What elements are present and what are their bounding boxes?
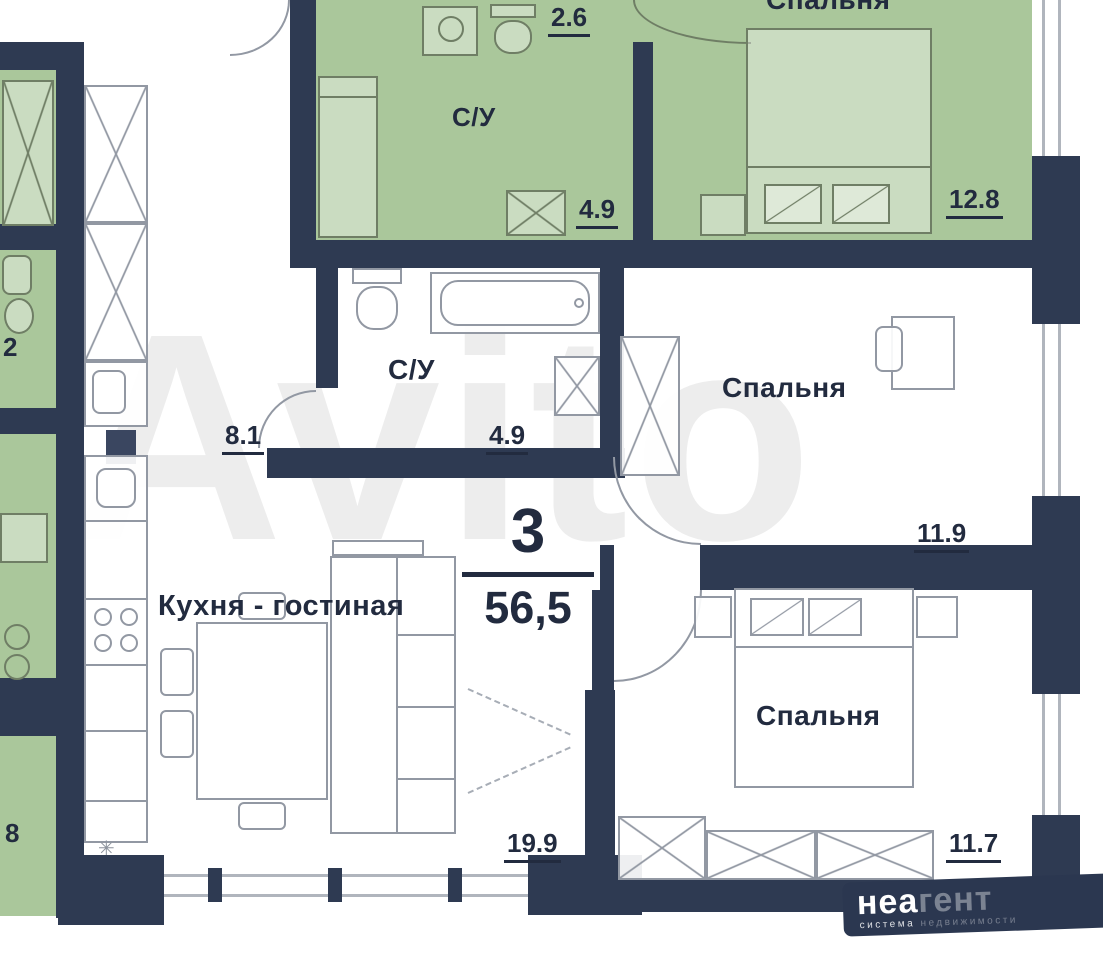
logo-brand-light: гент xyxy=(918,880,994,921)
hallway-cabinet xyxy=(92,370,126,414)
counter-divider xyxy=(86,800,146,802)
bathtub-drain xyxy=(574,298,584,308)
sofa-cushion xyxy=(398,706,454,708)
kitchen-sink xyxy=(96,468,136,508)
bedroom-middle-label: Спальня xyxy=(722,372,846,404)
counter-divider xyxy=(86,598,146,600)
pillow xyxy=(764,184,822,224)
window xyxy=(1058,0,1061,156)
sofa-armrest xyxy=(332,540,424,556)
wardrobe xyxy=(618,816,706,880)
wall xyxy=(1032,156,1080,324)
shower-line xyxy=(318,96,378,98)
sink xyxy=(4,298,34,334)
bathroom-area: 4.9 xyxy=(486,420,528,455)
kitchen-counter xyxy=(84,455,148,843)
toilet xyxy=(356,286,398,330)
kitchen-living-label: Кухня - гостиная xyxy=(158,590,404,623)
counter-divider xyxy=(86,664,146,666)
bed-line xyxy=(748,166,930,168)
neighbor-bedroom-label: Спальня xyxy=(766,0,890,16)
nightstand xyxy=(916,596,958,638)
wall xyxy=(0,224,56,250)
hallway-area: 8.1 xyxy=(222,420,264,455)
sofa-cushion xyxy=(398,634,454,636)
total-area: 56,5 xyxy=(462,582,594,634)
counter-divider xyxy=(86,520,146,522)
sink xyxy=(4,654,30,680)
window xyxy=(1058,324,1061,496)
opening-mark xyxy=(468,747,571,794)
sink xyxy=(554,356,600,416)
wardrobe xyxy=(706,830,816,880)
nightstand xyxy=(694,596,732,638)
wall xyxy=(58,855,164,925)
toilet xyxy=(2,255,32,295)
wardrobe xyxy=(84,85,148,223)
neighbor-bathroom-label: С/У xyxy=(452,102,496,133)
stove-burner xyxy=(120,608,138,626)
door-arc xyxy=(614,590,702,682)
wall xyxy=(316,268,338,388)
stove-burner xyxy=(120,634,138,652)
wall xyxy=(290,240,1032,268)
bed-line xyxy=(736,646,912,648)
counter-divider xyxy=(86,730,146,732)
wall xyxy=(592,590,614,690)
wall xyxy=(633,42,653,240)
window-mullion xyxy=(208,868,222,902)
neagent-logo: неагент система недвижимости xyxy=(842,867,1103,940)
wall xyxy=(56,42,84,918)
rooms-count: 3 xyxy=(462,496,594,567)
window-mullion xyxy=(448,868,462,902)
logo-brand-strong: неа xyxy=(856,882,919,922)
chair xyxy=(875,326,903,372)
window xyxy=(1058,694,1061,815)
window xyxy=(1042,694,1045,815)
kitchen-counter xyxy=(0,513,48,563)
bathroom-label: С/У xyxy=(388,354,435,386)
sofa-cushion xyxy=(398,778,454,780)
logo-subtitle-strong: система xyxy=(859,918,915,931)
wall xyxy=(290,0,316,246)
pillow xyxy=(750,598,804,636)
window xyxy=(1042,0,1045,156)
pillow xyxy=(832,184,890,224)
wall xyxy=(700,545,1032,590)
pillow xyxy=(808,598,862,636)
wall xyxy=(1032,496,1080,694)
neighbor-left-upper-area: 2 xyxy=(0,332,20,364)
door-arc xyxy=(230,0,290,56)
neighbor-left-lower-area: 8 xyxy=(2,818,22,850)
wall xyxy=(0,408,56,434)
chair xyxy=(160,648,194,696)
wardrobe xyxy=(84,223,148,361)
floor-plan: Avito xyxy=(0,0,1103,960)
kitchen-living-area: 19.9 xyxy=(504,828,561,863)
neighbor-vestibule-area: 2.6 xyxy=(548,2,590,37)
toilet xyxy=(490,4,536,18)
bedroom-middle-area: 11.9 xyxy=(914,518,969,553)
window xyxy=(1042,324,1045,496)
summary-divider xyxy=(462,572,594,577)
sink xyxy=(4,624,30,650)
wall xyxy=(0,678,84,736)
bathtub-inner xyxy=(440,280,590,326)
washing-machine-drum xyxy=(438,16,464,42)
dining-table xyxy=(196,622,328,800)
shower-cabinet xyxy=(318,76,378,238)
neighbor-bedroom-area: 12.8 xyxy=(946,184,1003,219)
toilet xyxy=(352,268,402,284)
wall xyxy=(267,448,625,478)
wardrobe xyxy=(816,830,934,880)
sink xyxy=(506,190,566,236)
chair xyxy=(238,802,286,830)
bedroom-bottom-area: 11.7 xyxy=(946,828,1001,863)
nightstand xyxy=(700,194,746,236)
wardrobe xyxy=(2,80,54,226)
stove-burner xyxy=(94,634,112,652)
toilet xyxy=(494,20,532,54)
wall xyxy=(600,545,614,590)
chair xyxy=(160,710,194,758)
neighbor-bathroom-area: 4.9 xyxy=(576,194,618,229)
opening-mark xyxy=(468,688,571,735)
wall xyxy=(0,42,56,70)
window-mullion xyxy=(328,868,342,902)
stove-burner xyxy=(94,608,112,626)
column-marker: ✳ xyxy=(98,836,115,861)
bedroom-bottom-label: Спальня xyxy=(756,700,880,732)
wardrobe xyxy=(620,336,680,476)
